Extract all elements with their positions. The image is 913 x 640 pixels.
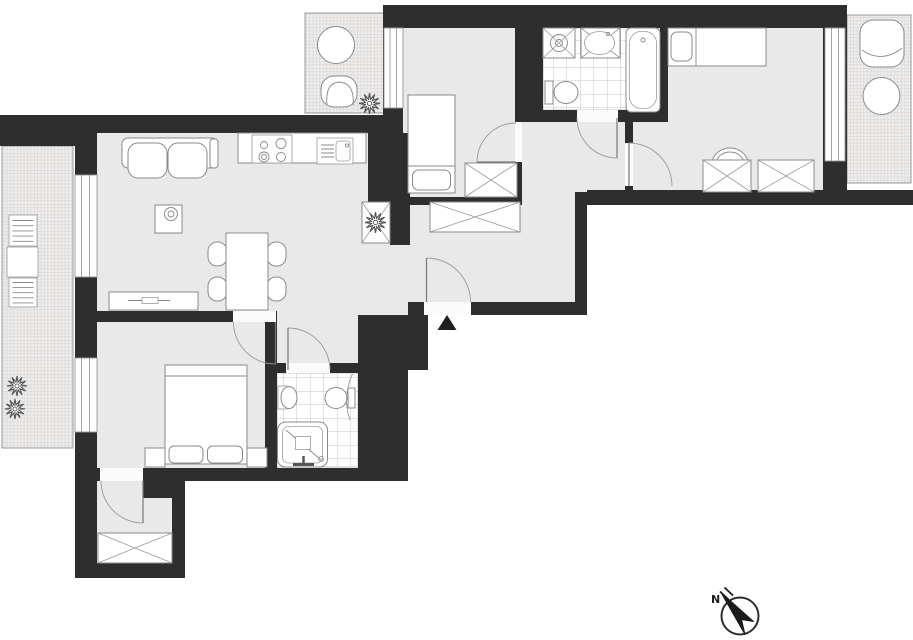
window-bedroom-right xyxy=(825,28,845,161)
single-bed-icon xyxy=(408,95,455,193)
washing-machine-icon xyxy=(543,28,575,58)
kitchen-sink-icon xyxy=(317,138,353,164)
armchair-icon xyxy=(860,20,904,67)
nightstand-icon xyxy=(247,448,267,467)
double-bed-icon xyxy=(165,365,247,464)
compass-north-label: N xyxy=(711,593,720,606)
balcony-top xyxy=(305,13,385,114)
sofa-icon xyxy=(122,138,218,178)
dining-chair-icon xyxy=(267,242,286,266)
entrance-arrow-icon xyxy=(438,315,457,330)
dining-chair-icon xyxy=(267,277,286,301)
shower-icon xyxy=(278,422,328,467)
balcony-right xyxy=(847,15,911,183)
floor-plan-drawing: N xyxy=(0,0,913,640)
toilet-icon xyxy=(325,388,355,409)
corner-cabinet-plant-icon xyxy=(362,202,390,243)
bathtub-icon xyxy=(626,28,660,112)
window-living-room xyxy=(75,175,97,277)
dining-chair-icon xyxy=(208,277,227,301)
wicker-chair-icon xyxy=(321,76,357,107)
side-table-lamp-icon xyxy=(155,205,182,233)
room-floors xyxy=(97,28,826,563)
toilet-icon xyxy=(545,81,578,104)
sideboard-icon xyxy=(109,292,198,310)
bench-icon xyxy=(9,215,37,246)
window-bedroom-master xyxy=(75,358,97,432)
window-bedroom-small xyxy=(384,28,403,108)
single-bed-icon xyxy=(668,28,766,66)
floor-plan-page: N xyxy=(0,0,913,640)
washbasin-icon xyxy=(278,386,297,409)
washbasin-icon xyxy=(581,28,620,58)
round-table-icon xyxy=(318,27,355,64)
stove-icon xyxy=(252,135,292,163)
bench-icon xyxy=(9,278,37,307)
balcony-table-icon xyxy=(7,247,38,277)
dining-chair-icon xyxy=(208,242,227,266)
round-table-icon xyxy=(863,78,900,115)
balcony-left xyxy=(2,146,73,448)
nightstand-icon xyxy=(145,448,165,467)
compass-north-icon: N xyxy=(711,588,759,635)
